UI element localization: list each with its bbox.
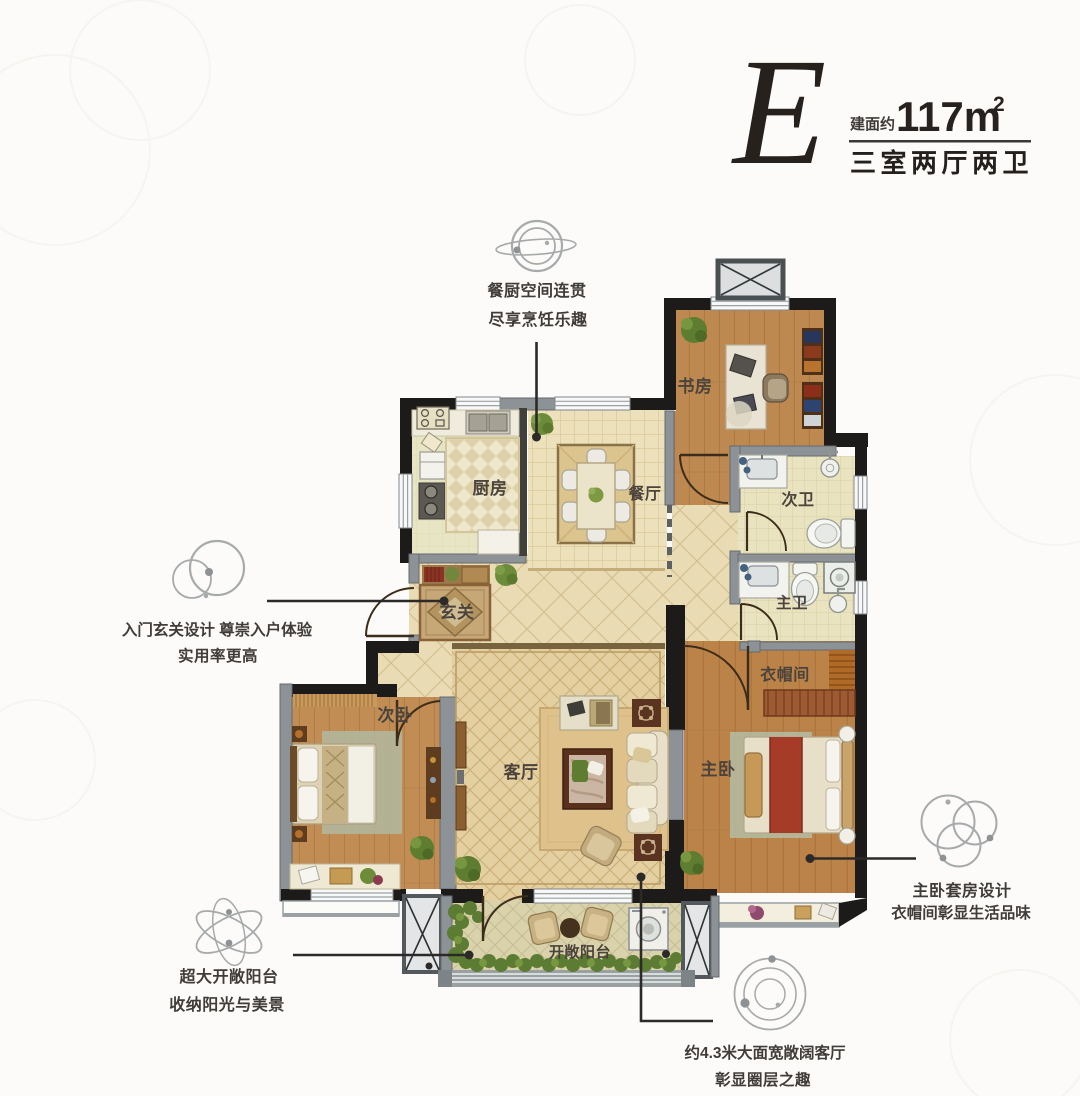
svg-text:实用率更高: 实用率更高: [178, 646, 258, 665]
svg-text:彰显圈层之趣: 彰显圈层之趣: [715, 1070, 811, 1089]
svg-text:E: E: [731, 28, 826, 197]
svg-text:三室两厅两卫: 三室两厅两卫: [850, 148, 1033, 178]
svg-text:衣帽间彰显生活品味: 衣帽间彰显生活品味: [891, 903, 1031, 922]
svg-text:开敞阳台: 开敞阳台: [549, 943, 611, 961]
svg-text:主卫: 主卫: [776, 593, 808, 612]
svg-text:入门玄关设计 尊崇入户体验: 入门玄关设计 尊崇入户体验: [122, 620, 313, 639]
svg-text:餐厅: 餐厅: [627, 484, 661, 503]
svg-text:尽享烹饪乐趣: 尽享烹饪乐趣: [488, 310, 588, 329]
svg-text:收纳阳光与美景: 收纳阳光与美景: [169, 995, 285, 1014]
svg-text:厨房: 厨房: [473, 478, 508, 498]
svg-text:次卫: 次卫: [781, 490, 814, 509]
svg-text:117m: 117m: [896, 93, 1001, 140]
svg-text:餐厨空间连贯: 餐厨空间连贯: [486, 281, 586, 300]
svg-text:建面约: 建面约: [850, 115, 895, 133]
svg-text:约4.3米大面宽敞阔客厅: 约4.3米大面宽敞阔客厅: [684, 1043, 846, 1062]
svg-text:超大开敞阳台: 超大开敞阳台: [178, 967, 278, 986]
svg-text:2: 2: [993, 93, 1005, 116]
svg-text:次卧: 次卧: [378, 705, 413, 725]
svg-text:主卧套房设计: 主卧套房设计: [912, 881, 1011, 900]
svg-text:衣帽间: 衣帽间: [760, 665, 810, 684]
svg-text:书房: 书房: [678, 376, 713, 396]
svg-text:主卧: 主卧: [701, 759, 736, 779]
svg-text:客厅: 客厅: [503, 762, 539, 782]
